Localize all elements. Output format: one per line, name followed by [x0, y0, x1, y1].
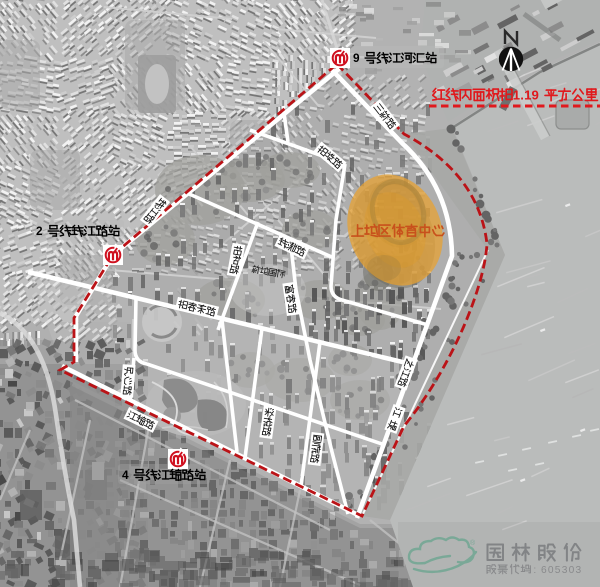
svg-text:0: 0 [569, 565, 575, 576]
svg-text:1: 1 [513, 87, 520, 102]
svg-text:1: 1 [524, 87, 531, 102]
svg-text:4: 4 [122, 468, 129, 482]
svg-text:3: 3 [562, 565, 568, 576]
svg-text:9: 9 [353, 51, 360, 65]
svg-text:3: 3 [576, 565, 582, 576]
svg-text:6: 6 [541, 565, 547, 576]
svg-text:2: 2 [36, 224, 43, 238]
svg-text:5: 5 [555, 565, 561, 576]
svg-text:9: 9 [532, 87, 539, 102]
svg-text:0: 0 [548, 565, 554, 576]
svg-text:®: ® [470, 539, 476, 547]
svg-text::: : [533, 565, 536, 576]
